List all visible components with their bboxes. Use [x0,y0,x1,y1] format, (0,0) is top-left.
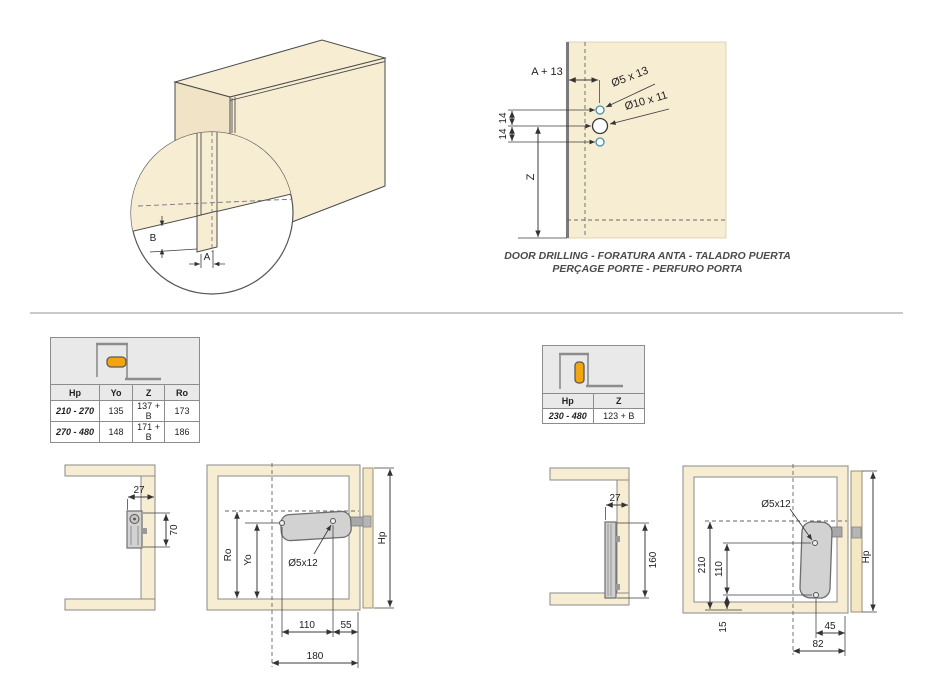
table-row: 230 - 480 123 + B [543,409,645,424]
dim-yo-label: Yo [243,554,254,566]
dim-110-label: 110 [714,561,725,577]
hole-small-top [596,106,604,114]
col-header-hp: Hp [51,385,100,401]
cabinet-bottom-panel [65,599,155,610]
left-table-pictogram-cell [51,338,200,385]
dim-55-label: 55 [340,620,352,631]
cabinet-outline [559,354,623,386]
door-panel-edge [851,471,862,612]
dim-210-label: 210 [697,556,708,573]
left-table-header-row: Hp Yo Z Ro [51,385,200,401]
right-table-pictogram-cell [543,346,645,394]
dim-45-label: 45 [824,621,836,632]
right-side-view: 27 160 [550,468,659,605]
vertical-lift-pictogram [543,346,644,391]
cell-ro: 173 [165,401,200,422]
dim-hp-label: Hp [861,550,872,563]
dim-110-label: 110 [299,620,315,631]
left-front-view: Ro Yo Ø5x12 110 55 180 Hp [207,463,394,668]
cabinet-outline [96,344,161,379]
cabinet-top-panel [550,468,629,480]
caption-line-1: DOOR DRILLING - FORATURA ANTA - TALADRO … [470,250,825,263]
door-panel-edge [363,468,373,608]
mech-hole-left [280,521,285,526]
cell-yo: 135 [100,401,133,422]
mech-hole-top [813,541,818,546]
right-front-view: Ø5x12 210 110 15 45 82 Hp [683,464,877,656]
hole-5x12-label: Ø5x12 [761,499,791,510]
hole-5x12-label: Ø5x12 [288,558,318,569]
cell-hp-range: 210 - 270 [51,401,100,422]
door-fitting-nub [852,527,861,538]
table-row: 210 - 270 135 137 + B 173 [51,401,200,422]
cell-z: 123 + B [593,409,644,424]
hole-small-bottom [596,138,604,146]
dim-27-label: 27 [609,493,621,504]
left-spec-table: Hp Yo Z Ro 210 - 270 135 137 + B 173 270… [50,337,200,443]
dim-14-lower-label: 14 [498,128,509,140]
cell-z: 137 + B [133,401,165,422]
mechanism-pivot-center [133,518,136,521]
door-drilling-diagram: A + 13 14 14 Z Ø5 x 13 Ø10 x 11 [498,42,726,238]
dim-160-label: 160 [648,551,659,568]
door-fitting-nub [363,516,371,527]
lift-mechanism-front [800,521,833,598]
col-header-z: Z [593,394,644,409]
mech-hole-right [331,519,336,524]
cell-yo: 148 [100,422,133,443]
left-side-view: 27 70 [65,465,180,610]
dim-b-label: B [150,233,157,244]
cell-hp-range: 270 - 480 [51,422,100,443]
mechanism-tab-upper [616,536,620,542]
mech-hole-bottom [814,593,819,598]
dim-27-label: 27 [133,485,145,496]
dim-70-label: 70 [169,524,180,536]
cabinet-bottom-panel [550,593,629,605]
drilling-caption: DOOR DRILLING - FORATURA ANTA - TALADRO … [470,250,825,276]
cabinet-top-panel [65,465,155,476]
section-divider [30,312,903,314]
hole-large-middle [593,119,608,134]
cell-hp-range: 230 - 480 [543,409,594,424]
cell-z: 171 + B [133,422,165,443]
dim-ro-label: Ro [223,548,234,561]
lift-flap-icon [107,357,126,367]
right-spec-table: Hp Z 230 - 480 123 + B [542,345,645,424]
horizontal-lift-pictogram [51,338,199,382]
mechanism-mount-tab [142,528,147,534]
mechanism-tab-lower [616,584,620,590]
dim-180-label: 180 [307,651,324,662]
dim-hp-label: Hp [377,531,388,544]
dim-82-label: 82 [812,639,824,650]
lift-flap-icon [575,362,584,383]
col-header-z: Z [133,385,165,401]
dim-z-label: Z [525,173,537,180]
lift-mechanism-front [280,511,351,541]
table-row: 270 - 480 148 171 + B 186 [51,422,200,443]
col-header-ro: Ro [165,385,200,401]
dim-a-label: A [204,252,211,263]
col-header-yo: Yo [100,385,133,401]
instruction-sheet: A B A + 13 14 14 Z Ø5 x 13 [0,0,933,700]
dim-a13-label: A + 13 [531,66,563,78]
dim-14-upper-label: 14 [498,112,509,124]
door-bottom-lip [197,211,217,252]
caption-line-2: PERÇAGE PORTE - PERFURO PORTA [470,263,825,276]
col-header-hp: Hp [543,394,594,409]
dim-15-label: 15 [718,621,729,633]
right-table-header-row: Hp Z [543,394,645,409]
cell-ro: 186 [165,422,200,443]
